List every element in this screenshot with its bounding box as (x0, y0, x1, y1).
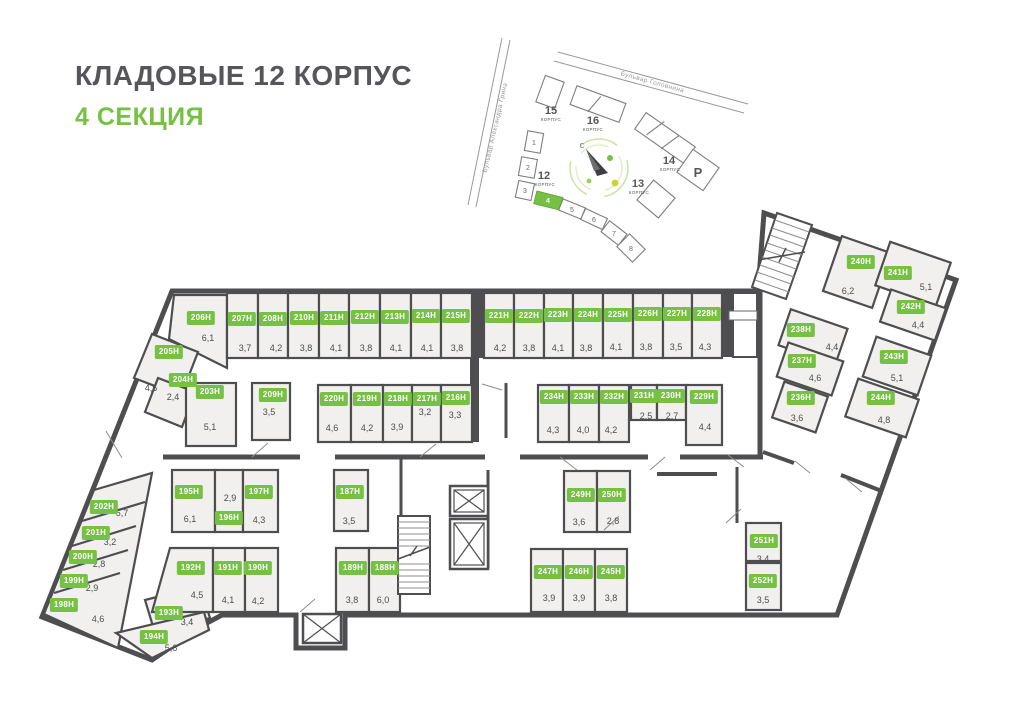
section-8: 8 (629, 246, 633, 253)
room-area: 4,2 (361, 423, 374, 433)
room-chip[interactable]: 225Н (604, 308, 632, 322)
room-chip[interactable]: 240Н (847, 255, 875, 269)
room-area: 3,6 (791, 413, 804, 423)
room-area: 4,2 (270, 343, 283, 353)
room-area: 5,1 (891, 373, 904, 383)
room-chip[interactable]: 226Н (634, 307, 662, 321)
room-chip[interactable]: 249Н (567, 488, 595, 502)
room-area: 4,2 (494, 343, 507, 353)
room-chip[interactable]: 227Н (663, 307, 691, 321)
building-12-sub: КОРПУС (535, 182, 556, 187)
room-area: 3,3 (449, 410, 462, 420)
building-15-number: 15 (545, 105, 557, 117)
room-area: 4,6 (326, 423, 339, 433)
room-chip[interactable]: 229Н (690, 390, 718, 404)
room-area: 6,2 (842, 286, 855, 296)
room-area: 3,8 (451, 343, 464, 353)
building-12-number: 12 (538, 170, 550, 182)
room-chip[interactable]: 224Н (574, 308, 602, 322)
room-area: 4,3 (699, 342, 712, 352)
room-chip[interactable]: 199Н (60, 574, 88, 588)
room-area: 3,8 (580, 343, 593, 353)
room-area: 3,5 (670, 342, 683, 352)
room-area: 5,1 (204, 422, 217, 432)
room-chip[interactable]: 246Н (565, 565, 593, 579)
room-area: 3,8 (346, 595, 359, 605)
room-chip[interactable]: 203Н (196, 385, 224, 399)
room-area: 6,1 (184, 514, 197, 524)
room-area: 2,4 (167, 392, 180, 402)
floor-plan-svg: Бульвар Александра Грина Бульвар Головни… (0, 0, 1024, 722)
room-area: 4,1 (390, 343, 403, 353)
section-3: 3 (523, 188, 527, 195)
room-chip[interactable]: 202Н (90, 500, 118, 514)
room-chip[interactable]: 195Н (175, 485, 203, 499)
room-area: 4,6 (809, 373, 822, 383)
room-chip[interactable]: 189Н (339, 561, 367, 575)
room-chip[interactable]: 241Н (884, 266, 912, 280)
room-chip[interactable]: 214Н (412, 309, 440, 323)
room-chip[interactable]: 216Н (442, 391, 470, 405)
room-area: 3,9 (573, 593, 586, 603)
building-15-sub: КОРПУС (541, 117, 562, 122)
floor-plan: Бульвар Александра Грина Бульвар Головни… (0, 0, 1024, 722)
parking-label: Р (694, 165, 703, 180)
room-area: 2,8 (607, 516, 620, 526)
room-chip[interactable]: 223Н (544, 308, 572, 322)
room-chip[interactable]: 213Н (381, 310, 409, 324)
room-chip[interactable]: 215Н (442, 309, 470, 323)
street-label: Бульвар Головнина (620, 70, 685, 94)
room-chip[interactable]: 242Н (897, 300, 925, 314)
building-14-sub: КОРПУС (660, 167, 681, 172)
room-chip[interactable]: 198Н (50, 598, 78, 612)
room-chip[interactable]: 234Н (540, 390, 568, 404)
section-7: 7 (612, 231, 616, 238)
room-area: 4,2 (252, 596, 265, 606)
room-area: 6,1 (202, 333, 215, 343)
room-chip[interactable]: 201Н (82, 526, 110, 540)
room-chip[interactable]: 188Н (371, 561, 399, 575)
room-area: 2,9 (224, 493, 237, 503)
building-16-number: 16 (587, 115, 599, 127)
room-chip[interactable]: 205Н (155, 345, 183, 359)
room-area: 3,6 (573, 517, 586, 527)
room-area: 4,6 (92, 614, 105, 624)
room-chip[interactable]: 197Н (245, 485, 273, 499)
room-chip[interactable]: 233Н (570, 390, 598, 404)
room-area: 3,2 (419, 407, 432, 417)
room-chip[interactable]: 207Н (228, 312, 256, 326)
room-chip[interactable]: 228Н (693, 307, 721, 321)
room-area: 4,1 (330, 343, 343, 353)
room-chip[interactable]: 237Н (788, 354, 816, 368)
room-area: 3,8 (300, 343, 313, 353)
room-chip[interactable]: 212Н (351, 310, 379, 324)
room-chip[interactable]: 222Н (515, 309, 543, 323)
building-13-sub: КОРПУС (629, 190, 650, 195)
room-area: 4,1 (421, 343, 434, 353)
room-area: 3,8 (640, 342, 653, 352)
section-6: 6 (592, 217, 596, 224)
room-area: 6,0 (377, 595, 390, 605)
room-area: 4,1 (222, 595, 235, 605)
room-area: 4,8 (878, 415, 891, 425)
room-area: 3,9 (391, 422, 404, 432)
room-area: 2,5 (640, 411, 653, 421)
room-chip[interactable]: 245Н (597, 565, 625, 579)
street-label: Бульвар Александра Грина (482, 82, 510, 173)
compass-icon: С (570, 139, 628, 197)
room-chip[interactable]: 191Н (214, 561, 242, 575)
room-chip[interactable]: 218Н (384, 392, 412, 406)
room-chip[interactable]: 208Н (259, 312, 287, 326)
room-chip[interactable]: 251Н (750, 534, 778, 548)
room-chip[interactable]: 221Н (485, 309, 513, 323)
room-area: 3,8 (605, 593, 618, 603)
room-chip[interactable]: 196Н (215, 511, 243, 525)
room-area: 3,4 (757, 554, 770, 564)
room-chip[interactable]: 238Н (787, 323, 815, 337)
room-area: 4,4 (912, 320, 925, 330)
section-5: 5 (570, 207, 574, 214)
room-chip[interactable]: 187Н (336, 485, 364, 499)
room-area: 3,5 (343, 516, 356, 526)
room-chip[interactable]: 217Н (413, 392, 441, 406)
building-16-sub: КОРПУС (583, 127, 604, 132)
room-area: 4,5 (191, 590, 204, 600)
minimap-sections: 1 2 3 4 5 6 7 8 (515, 131, 645, 262)
room-chip[interactable]: 210Н (290, 311, 318, 325)
building-13-number: 13 (632, 178, 644, 190)
room-area: 5,6 (165, 643, 178, 653)
room-area: 4,0 (577, 425, 590, 435)
room-area: 4,3 (253, 515, 266, 525)
room-chip[interactable]: 192Н (177, 561, 205, 575)
room-area: 4,1 (610, 342, 623, 352)
room-area: 4,5 (145, 383, 158, 393)
room-chip[interactable]: 206Н (187, 311, 215, 325)
room-chip[interactable]: 243Н (880, 350, 908, 364)
room-chip[interactable]: 220Н (320, 392, 348, 406)
room-chip[interactable]: 252Н (749, 574, 777, 588)
room-area: 4,4 (826, 342, 839, 352)
section-2: 2 (526, 165, 530, 172)
room-chip[interactable]: 247Н (534, 565, 562, 579)
room-chip[interactable]: 190Н (244, 561, 272, 575)
room-area: 3,7 (239, 343, 252, 353)
room-area: 4,1 (552, 343, 565, 353)
room-area: 2,7 (666, 411, 679, 421)
room-chip[interactable]: 231Н (630, 389, 658, 403)
room-area: 3,8 (523, 343, 536, 353)
minimap-buildings: 15 КОРПУС 16 КОРПУС 14 КОРПУС 13 КОРПУС … (535, 75, 719, 218)
room-area: 5,1 (920, 282, 933, 292)
room-area: 3,5 (757, 595, 770, 605)
room-chip[interactable]: 236Н (787, 391, 815, 405)
room-chip[interactable]: 209Н (259, 388, 287, 402)
room-area: 4,2 (605, 425, 618, 435)
room-chip[interactable]: 219Н (353, 392, 381, 406)
room-chip[interactable]: 204Н (169, 373, 197, 387)
room-chip[interactable]: 244Н (867, 391, 895, 405)
room-chip[interactable]: 200Н (69, 550, 97, 564)
room-chip[interactable]: 211Н (320, 311, 348, 325)
room-area: 3,8 (360, 343, 373, 353)
room-chip[interactable]: 250Н (598, 488, 626, 502)
room-area: 3,9 (543, 593, 556, 603)
building-14-number: 14 (663, 155, 676, 167)
section-1: 1 (532, 140, 536, 147)
room-chip[interactable]: 194Н (140, 630, 168, 644)
room-chip[interactable]: 230Н (657, 389, 685, 403)
room-chip[interactable]: 193Н (155, 606, 183, 620)
room-area: 4,3 (547, 425, 560, 435)
compass-north-label: С (579, 143, 584, 150)
section-4-active: 4 (546, 198, 550, 205)
room-chip[interactable]: 232Н (600, 390, 628, 404)
minimap: Бульвар Александра Грина Бульвар Головни… (468, 38, 748, 262)
room-area: 4,4 (699, 422, 712, 432)
room-area: 3,5 (263, 407, 276, 417)
